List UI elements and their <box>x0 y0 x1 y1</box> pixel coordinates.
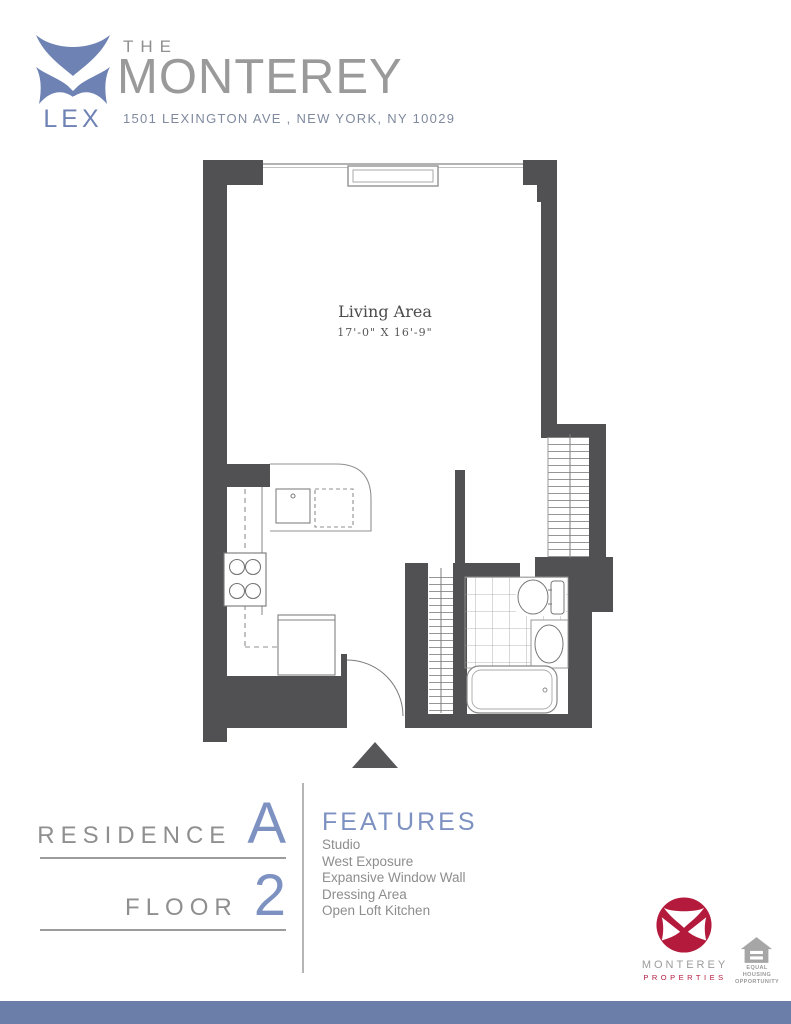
dishwasher <box>315 489 353 527</box>
feature-item: Dressing Area <box>322 887 466 904</box>
window-wall <box>263 164 523 186</box>
hall-closet <box>429 568 453 713</box>
stove <box>224 553 266 606</box>
bathroom <box>465 577 568 713</box>
properties-logo-name: MONTEREY <box>628 959 742 971</box>
features-list: Studio West Exposure Expansive Window Wa… <box>322 837 466 920</box>
bathtub-fixture <box>467 666 557 713</box>
entry-door <box>347 660 403 716</box>
feature-item: West Exposure <box>322 854 466 871</box>
living-area-dimensions: 17'-0" X 16'-9" <box>310 326 460 339</box>
residence-label: RESIDENCE <box>37 822 231 850</box>
feature-item: Open Loft Kitchen <box>322 903 466 920</box>
footer-accent-bar <box>0 1001 791 1024</box>
kitchen <box>224 464 371 675</box>
floor-label: FLOOR <box>125 894 238 922</box>
divider-line <box>302 783 304 973</box>
monterey-properties-icon <box>655 896 713 954</box>
feature-item: Expansive Window Wall <box>322 870 466 887</box>
feature-item: Studio <box>322 837 466 854</box>
equal-housing-text: EQUAL HOUSING OPPORTUNITY <box>732 965 782 986</box>
features-heading: FEATURES <box>322 810 478 835</box>
floor-value: 2 <box>254 873 286 919</box>
dressing-closet <box>548 434 589 558</box>
residence-value: A <box>247 801 286 847</box>
properties-logo-sub: PROPERTIES <box>628 973 742 982</box>
equal-housing-icon <box>740 936 773 964</box>
residence-row: RESIDENCE A <box>40 801 286 859</box>
floor-plan-flyer: AT LEX THE MONTEREY 1501 LEXINGTON AVE ,… <box>0 0 791 1024</box>
vanity-sink-fixture <box>531 620 568 668</box>
toilet-fixture <box>516 578 566 616</box>
living-area-label: Living Area <box>310 302 460 321</box>
entry-arrow-icon <box>352 742 398 768</box>
floor-row: FLOOR 2 <box>40 873 286 931</box>
refrigerator <box>278 615 335 675</box>
